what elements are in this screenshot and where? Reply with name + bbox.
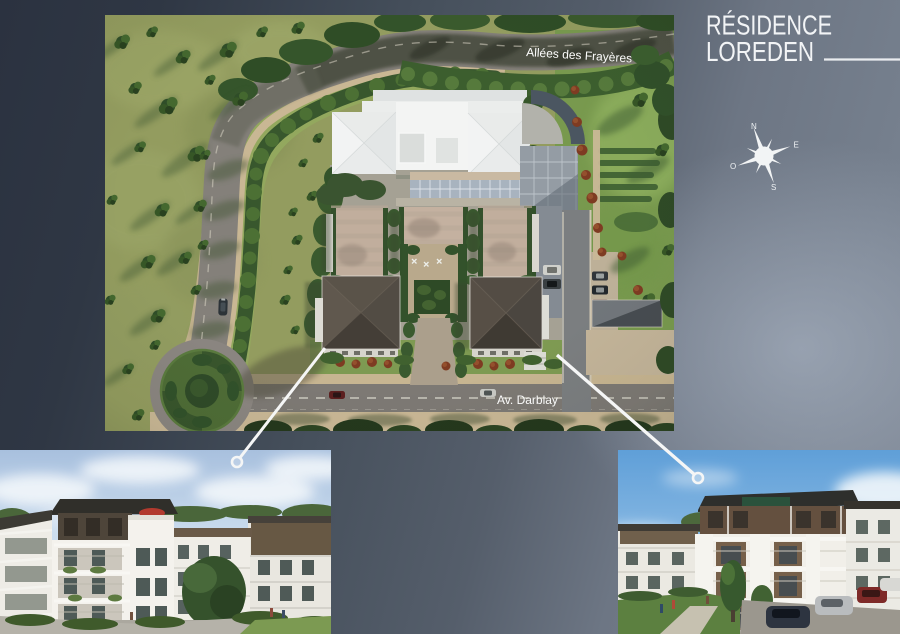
svg-text:LOREDEN: LOREDEN (706, 36, 814, 67)
svg-text:E: E (794, 141, 799, 150)
svg-text:S: S (771, 183, 776, 192)
svg-text:N: N (751, 122, 757, 131)
svg-text:O: O (730, 162, 736, 171)
